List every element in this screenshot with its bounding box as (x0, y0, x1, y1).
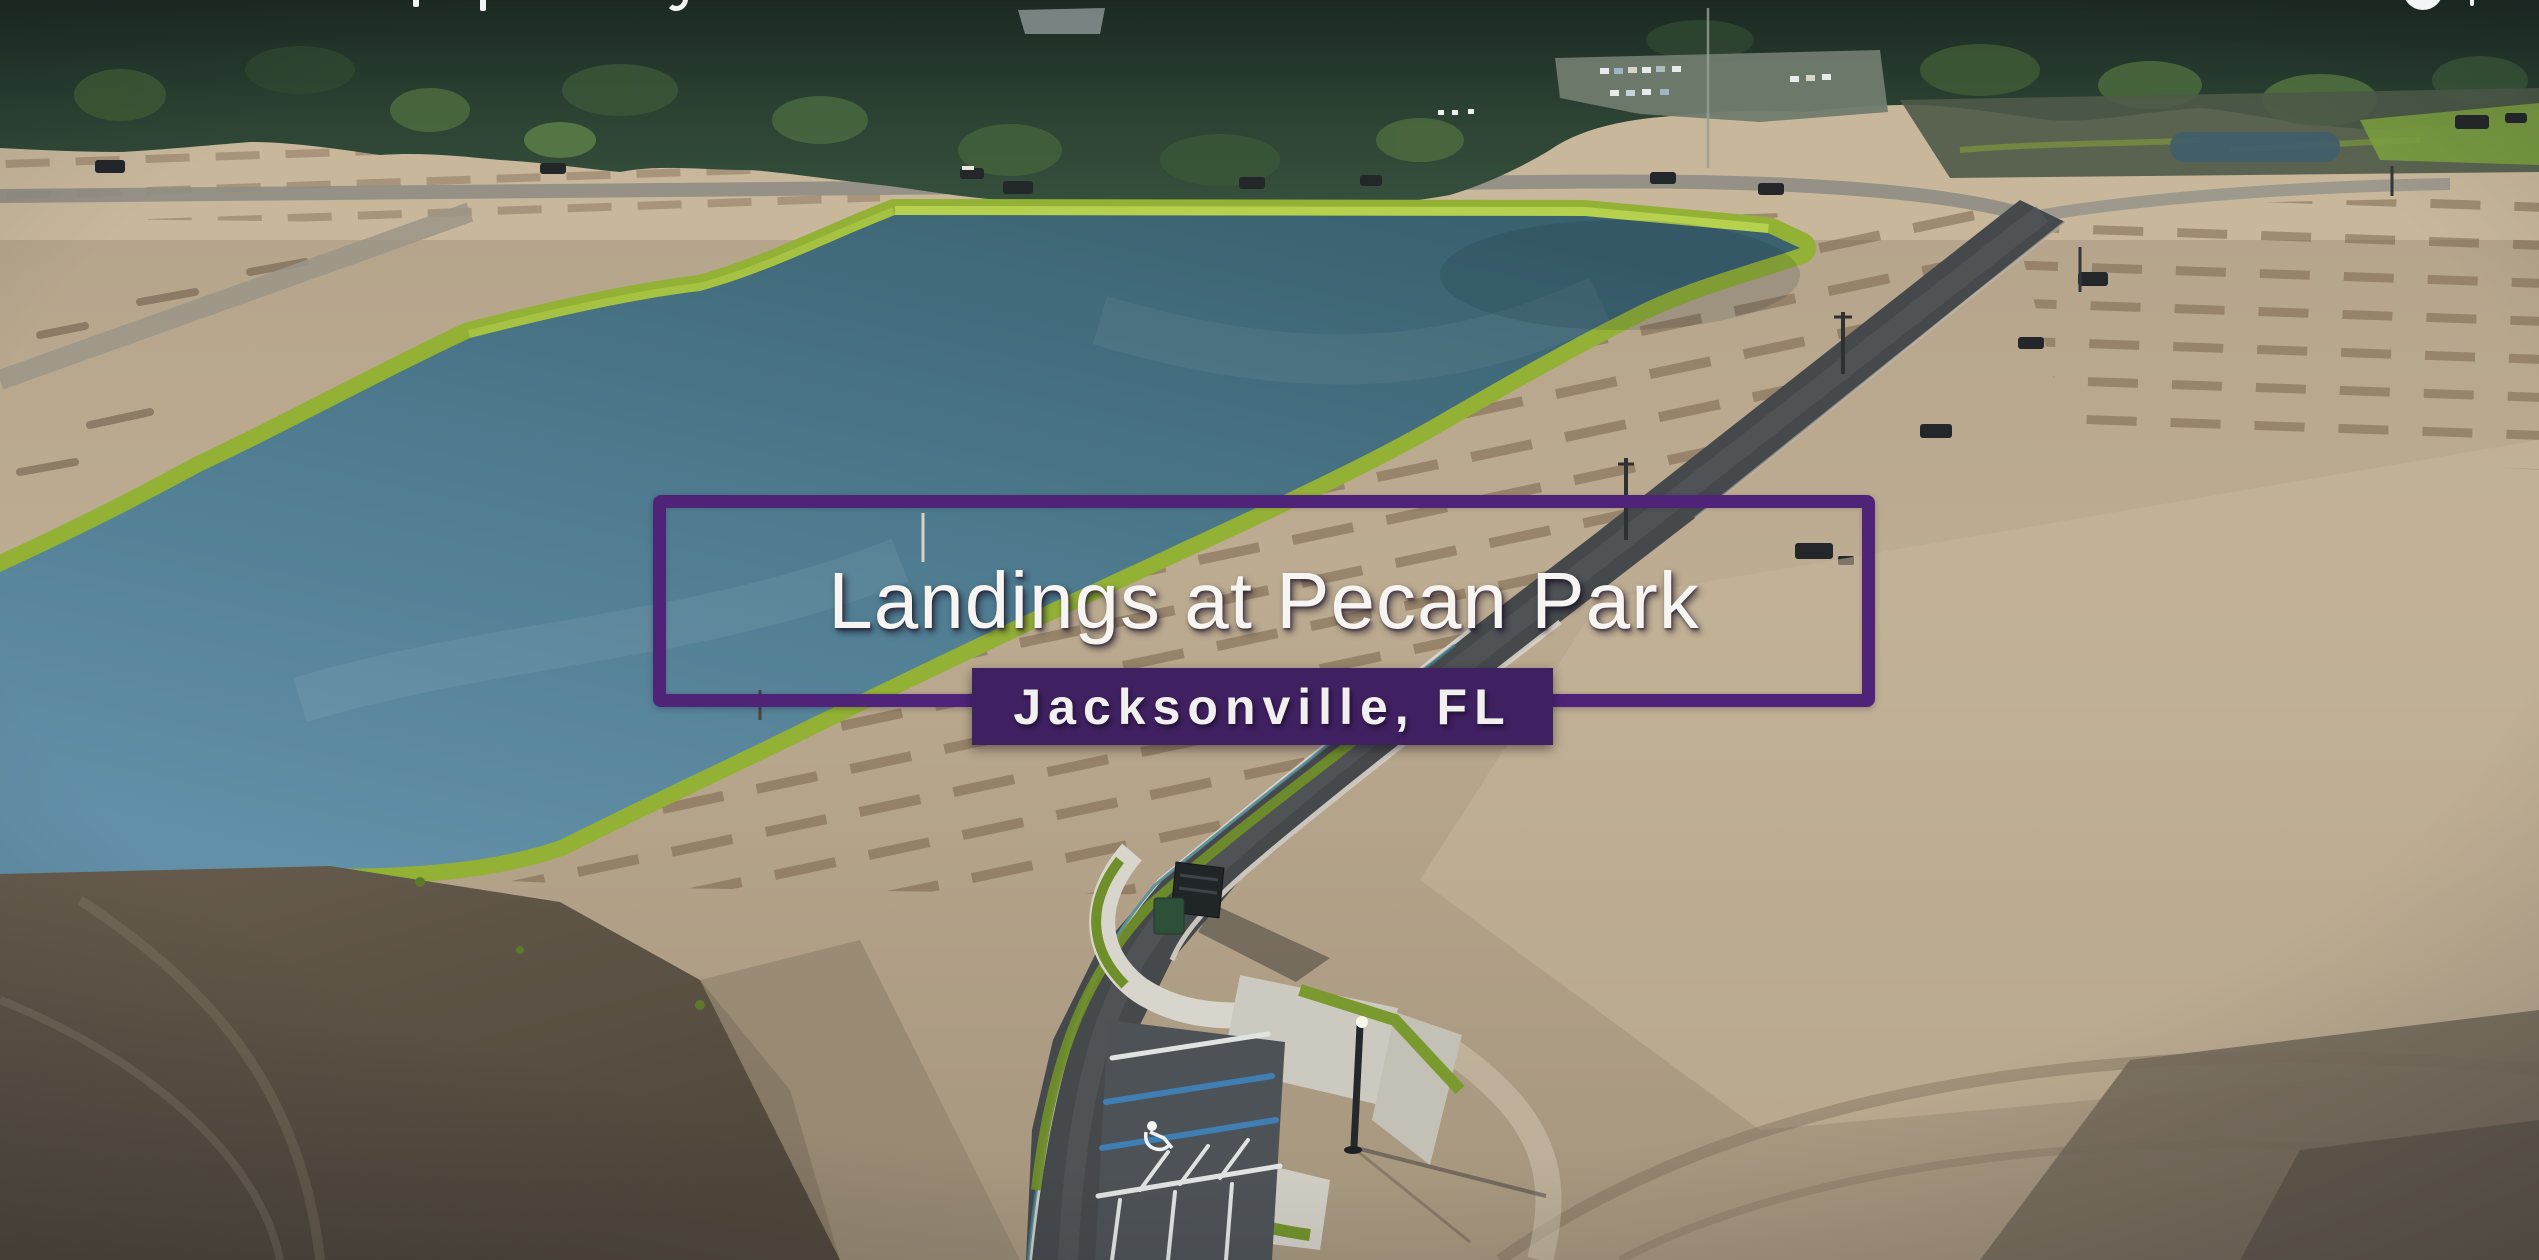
community-name: Landings at Pecan Park (828, 555, 1699, 647)
location-badge: Jacksonville, FL (972, 668, 1553, 745)
cutoff-text-fragment-4 (2470, 0, 2474, 6)
cutoff-text-fragment-2 (480, 0, 486, 11)
location-label: Jacksonville, FL (1013, 678, 1511, 736)
cutoff-text-fragment-1 (413, 0, 419, 7)
video-frame[interactable]: Landings at Pecan Park Jacksonville, FL (0, 0, 2539, 1260)
